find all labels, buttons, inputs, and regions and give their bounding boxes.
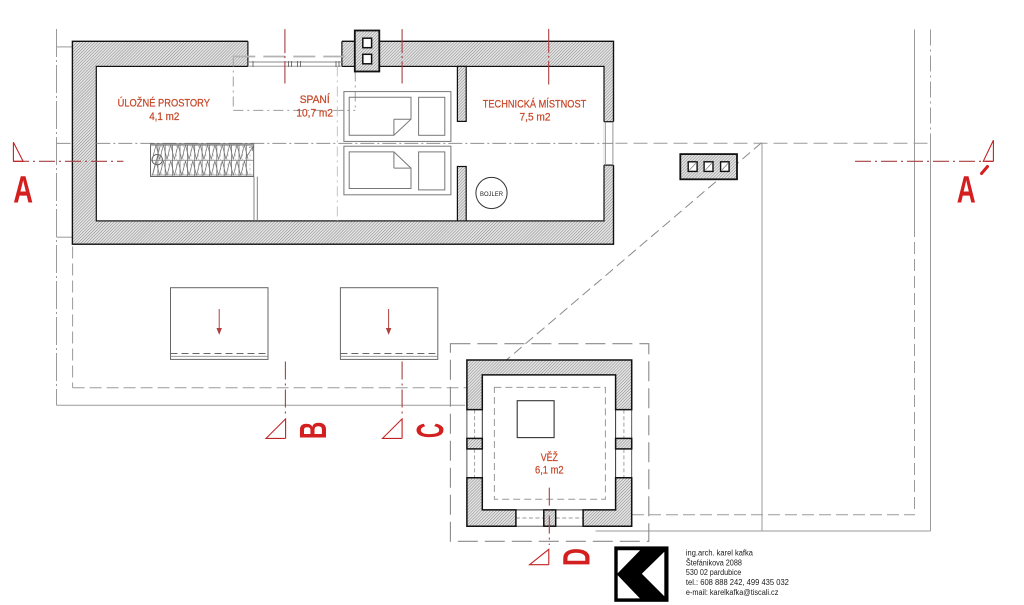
svg-text:530 02 pardubice: 530 02 pardubice xyxy=(686,568,742,577)
svg-text:TECHNICKÁ MÍSTNOST: TECHNICKÁ MÍSTNOST xyxy=(483,98,587,111)
svg-text:ÚLOŽNÉ PROSTORY: ÚLOŽNÉ PROSTORY xyxy=(118,96,211,109)
svg-text:6,1 m2: 6,1 m2 xyxy=(535,465,564,477)
svg-text:e-mail: karelkafka@tiscali.cz: e-mail: karelkafka@tiscali.cz xyxy=(686,588,779,597)
svg-text:BOJLER: BOJLER xyxy=(480,191,503,198)
svg-text:B: B xyxy=(293,422,335,440)
svg-text:ing.arch. karel kafka: ing.arch. karel kafka xyxy=(686,548,754,557)
svg-text:VĚŽ: VĚŽ xyxy=(541,451,558,464)
svg-text:D: D xyxy=(556,548,598,566)
svg-text:10,7 m2: 10,7 m2 xyxy=(296,107,333,119)
svg-text:4,1 m2: 4,1 m2 xyxy=(149,111,179,123)
svg-text:A: A xyxy=(13,170,33,212)
svg-text:Štefánikova 2088: Štefánikova 2088 xyxy=(686,559,742,568)
svg-text:A: A xyxy=(957,170,976,212)
svg-text:SPANÍ: SPANÍ xyxy=(300,93,331,106)
svg-text:7,5 m2: 7,5 m2 xyxy=(520,112,551,124)
svg-text:tel.: 608 888 242, 499 435 032: tel.: 608 888 242, 499 435 032 xyxy=(686,578,790,587)
svg-text:C: C xyxy=(410,423,452,438)
